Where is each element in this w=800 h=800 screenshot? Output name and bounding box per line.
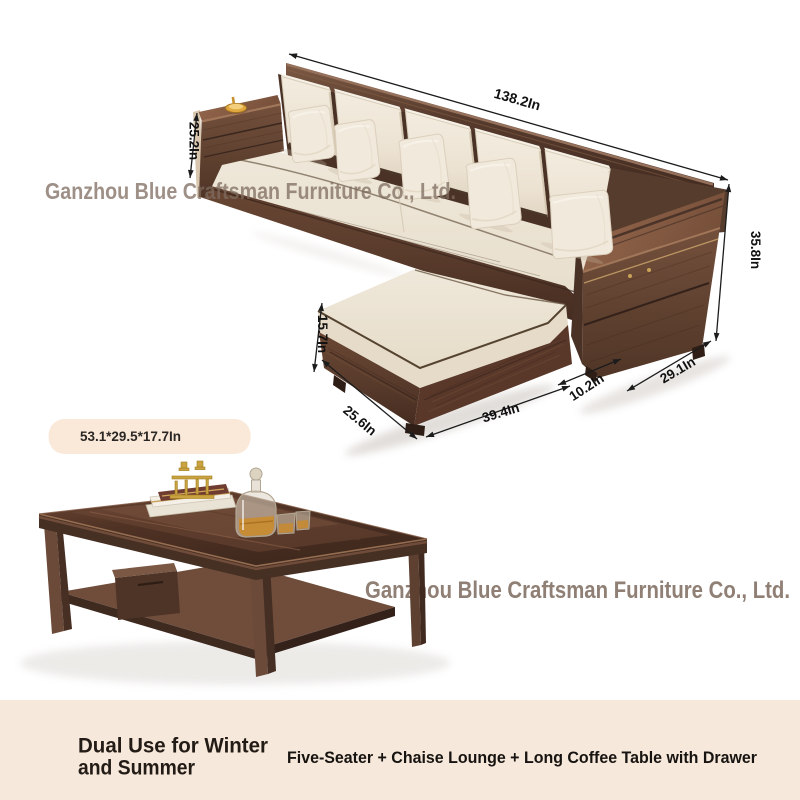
svg-text:35.8In: 35.8In	[748, 231, 763, 269]
svg-text:15.7In: 15.7In	[315, 315, 330, 353]
svg-text:53.1*29.5*17.7In: 53.1*29.5*17.7In	[80, 428, 181, 444]
svg-text:Ganzhou Blue Craftsman Furnitu: Ganzhou Blue Craftsman Furniture Co., Lt…	[45, 178, 456, 204]
svg-text:Dual Use for Winter: Dual Use for Winter	[78, 735, 268, 758]
svg-text:25.2In: 25.2In	[187, 122, 202, 160]
svg-text:Ganzhou Blue Craftsman Furnitu: Ganzhou Blue Craftsman Furniture Co., Lt…	[365, 577, 790, 604]
svg-text:Five-Seater + Chaise Lounge +: Five-Seater + Chaise Lounge + Long Coffe…	[287, 749, 758, 767]
svg-text:and Summer: and Summer	[78, 757, 195, 780]
